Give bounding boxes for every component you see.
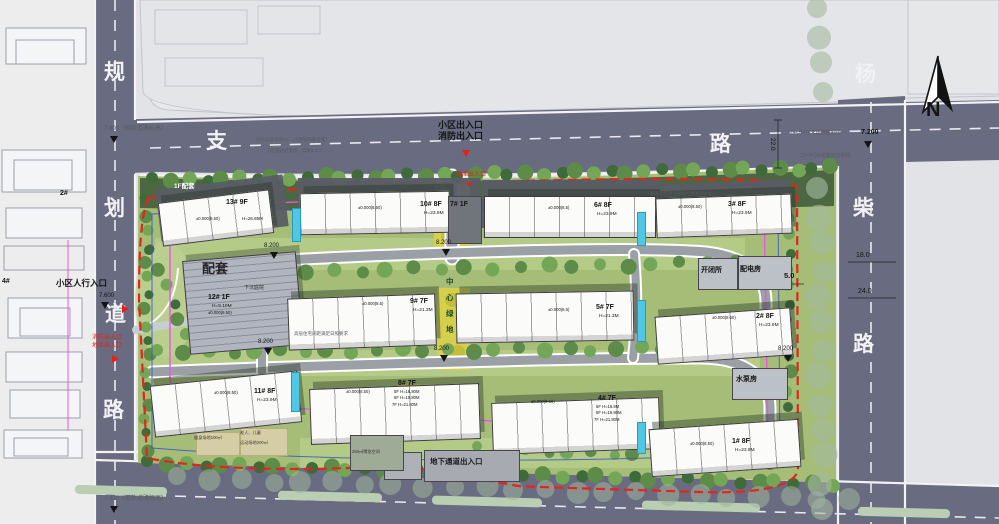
b8-l1: 5F H=16.80M [394,390,420,395]
b13-elev: ±0.000(8.50) [196,217,220,222]
b12-name: 12# 1F [208,294,230,302]
central-green-char: 中 [446,278,454,286]
pump-room-label: 水泵房 [736,376,757,384]
context-building-4-label: 4# [2,278,10,286]
road-name-char: 支 [206,131,227,154]
fence-note-1: 绿化设施带宽2m（含围墙绿篱设置） [256,138,330,143]
b3-name: 3# 8F [728,201,746,209]
b12-elev: ±0.000(8.50) [208,311,232,316]
playground-label-1: 老人、儿童 [240,431,261,436]
water-feature [637,300,646,342]
b1-elev: ±0.000(8.50) [690,442,714,447]
garage-entrance-label: 地库出入口 [456,172,486,178]
dim-5: 5.0 [784,272,794,280]
b7-name: 7# 1F [450,201,468,209]
b6-height: H=23.9M [597,212,617,217]
expo-space-label: 250㎡博览空间 [352,450,380,455]
b2-elev: ±0.000(8.50) [712,316,736,321]
b11-name: 11# 8F [254,388,275,396]
garage-entrance-label-west: 地库出入口 [92,343,122,349]
control-line-label-2: 12<H<24米建筑控制线 [800,154,851,159]
b5-height: H=21.3M [599,314,619,319]
b2-height: H=23.9M [759,323,779,328]
entrance-label-main: 小区出入口 [438,121,483,131]
site-elevation: 8.200 [258,339,273,345]
building-12-amenity [182,251,304,355]
road-elevation-sw: 7.420（现状道路标高） [104,496,167,502]
spacing-note: 高层住宅间距满足日照要求 [294,332,348,337]
b4-elev: ±0.000(8.50) [531,400,555,405]
road-name-char: 杨 [855,64,876,87]
b11-elev: ±0.000(8.50) [214,391,238,396]
setback-note: 住宅建筑退让道路红线距离50m [650,192,713,197]
road-elevation-ne: 7.200 [861,129,879,137]
b5-elev: ±0.000(8.5) [548,308,569,313]
b13-height: H=26.85M [242,217,263,222]
b5-name: 5# 7F [596,304,614,312]
b1-name: 1# 8F [732,438,750,446]
water-feature [637,212,646,246]
b2-name: 2# 8F [756,313,774,321]
dim-24: 24.0 [858,288,872,296]
road-name-char: 路 [103,400,124,423]
b1-height: H=23.9M [735,448,755,453]
water-feature [637,422,646,454]
b8-l3: 7F H=21.80M [392,403,418,408]
b12-tag: 配套 [202,262,228,276]
b3-elev: ±0.000(8.50) [678,205,702,210]
fence-note-2: 小区通透式围墙（高度2.2m） [266,149,326,154]
b13-name: 13# 9F [226,199,248,207]
b4-name: 4# 7F [598,395,616,403]
road-name-char: 划 [104,198,125,221]
power-room-label: 配电房 [740,266,761,274]
b3-height: H=23.9M [732,211,752,216]
switch-station-label: 开闭所 [701,267,722,275]
site-plan-drawing: 规 划 道 路 支 路 杨 柴 路 N 小区出入口 消防出入口 地库出入口 小区… [0,0,999,524]
road-name-char: 规 [104,62,125,85]
building-6 [484,196,656,238]
control-line-label-1: 24<H<76米建筑控制线 [790,131,841,136]
b12-height: H=5.10M [212,304,232,309]
water-feature [292,208,301,242]
b9-name: 9# 7F [410,298,428,306]
site-elevation: 8.200 [264,243,279,249]
b10-height: H=23.9M [424,211,444,216]
pedestrian-entrance-label: 小区人行入口 [56,279,107,288]
b10-name: 10# 8F [420,201,442,209]
water-feature [291,372,300,412]
road-name-char: 路 [853,334,874,357]
b4-l3: 7F H=21.80M [594,418,620,423]
road-elevation-nw: 7.800（现状道路标高） [104,126,167,132]
pump-room-box [732,368,788,400]
entrance-label-fire: 消防出入口 [438,132,483,142]
b8-elev: ±0.000(8.50) [346,390,370,395]
central-green-char: 心 [446,294,454,302]
site-elevation: 8.200 [778,346,793,352]
b6-name: 6# 8F [594,202,612,210]
building-4 [491,397,661,455]
underground-passage-label: 地下通道出入口 [430,458,483,466]
b9-elev: ±0.000(8.5) [362,302,383,307]
dim-22: 22.0 [769,138,776,151]
north-label: N [926,100,940,122]
b11-height: H=23.9M [257,398,277,403]
elevation-7600: 7.600 [99,293,114,299]
podium-label: 1F配套 [174,183,195,190]
fitness-label: 健身场地100㎡ [194,436,222,441]
context-building-2-label: 2# [60,190,68,198]
b4-l2: 6F H=19.80M [596,411,622,416]
central-green-char: 地 [446,326,454,334]
b6-elev: ±0.000(8.5) [548,206,569,211]
playground-label-2: 运动场地200㎡ [240,441,268,446]
b10-elev: ±0.000(8.50) [358,206,382,211]
building-3 [655,194,792,239]
b8-name: 8# 7F [398,380,416,388]
central-green-char: 绿 [446,310,454,318]
b4-l1: 5F H=16.8M [596,405,619,410]
fire-entrance-label: 消防出入口 [92,335,122,341]
site-elevation: 8.200 [436,240,451,246]
road-name-char: 路 [710,134,731,157]
dim-18: 18.0 [856,252,870,260]
b8-l2: 6F H=19.80M [394,396,420,401]
site-elevation: 8.200 [434,346,449,352]
sunken-courtyard-label: 下沉庭院 [244,286,264,291]
b9-height: H=21.3M [413,308,433,313]
road-name-char: 柴 [853,198,874,221]
